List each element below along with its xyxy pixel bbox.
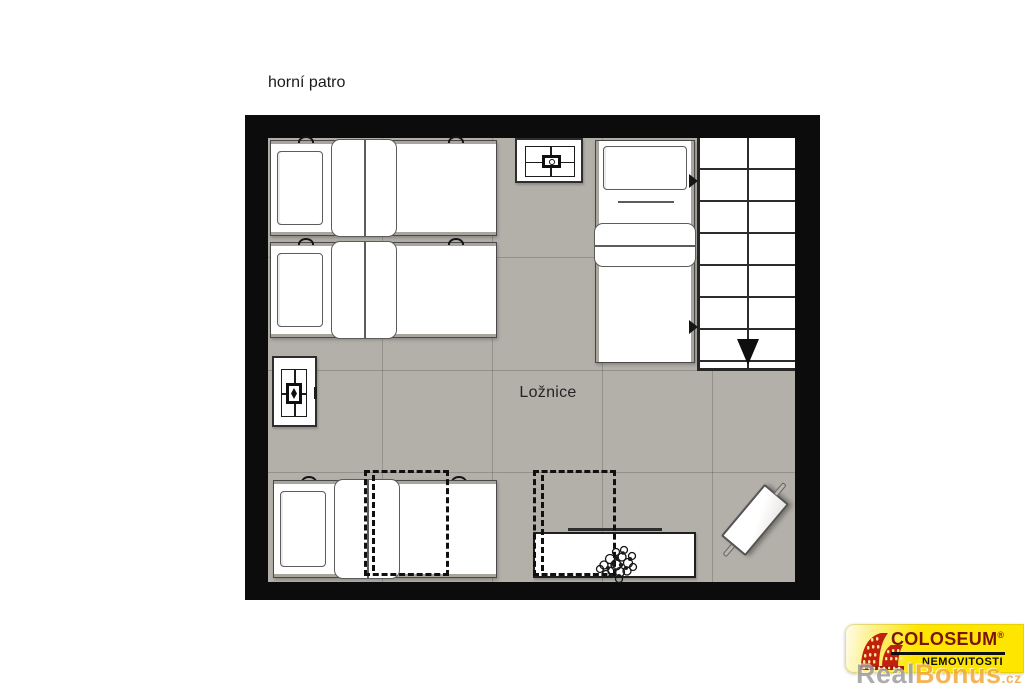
stair-down-arrow-icon — [737, 339, 759, 365]
stair-direction-tick — [689, 174, 698, 188]
watermark-cz: .cz — [1002, 670, 1022, 686]
staircase-down — [697, 138, 795, 371]
stair-direction-tick — [689, 320, 698, 334]
bed-foot-tick — [298, 238, 314, 245]
duvet-fold — [331, 139, 397, 237]
logo-divider — [891, 652, 1005, 655]
watermark-bonus: Bonus — [915, 659, 1002, 686]
duvet-fold — [594, 223, 696, 267]
registered-mark: ® — [997, 630, 1004, 640]
pillow — [603, 146, 687, 190]
sheet-crease — [618, 201, 674, 203]
lamp-core-icon — [542, 155, 561, 168]
stair-center-line — [747, 138, 749, 368]
room-label: Ložnice — [493, 384, 603, 402]
grid-line — [268, 472, 795, 473]
diagonal-bench — [714, 476, 795, 564]
twin-bed-2 — [270, 242, 497, 338]
wall-cabinet — [272, 356, 317, 427]
pillow — [277, 253, 323, 327]
plant-icon — [586, 541, 648, 585]
overhead-dashed-outline-1 — [364, 470, 449, 576]
single-bed-right — [595, 140, 695, 363]
floorplan-page: horní patro — [0, 0, 1024, 686]
bed-foot-tick — [298, 136, 314, 143]
cabinet-tick — [314, 387, 317, 399]
pillow — [277, 151, 323, 225]
bench-leg — [773, 482, 786, 497]
watermark-real: Real — [856, 659, 915, 686]
floorplan: Ložnice — [245, 115, 820, 600]
lamp-core-icon — [286, 383, 302, 404]
bed-foot-tick — [448, 136, 464, 143]
bed-foot-tick — [448, 238, 464, 245]
duvet-fold — [331, 241, 397, 339]
watermark: RealBonus.cz — [856, 659, 1022, 686]
pillow — [280, 491, 326, 567]
logo-brand: COLOSEUM® — [891, 629, 1004, 650]
bedroom-floor: Ložnice — [268, 138, 795, 582]
floor-title: horní patro — [268, 74, 345, 92]
bedside-table — [515, 138, 583, 183]
twin-bed-1 — [270, 140, 497, 236]
